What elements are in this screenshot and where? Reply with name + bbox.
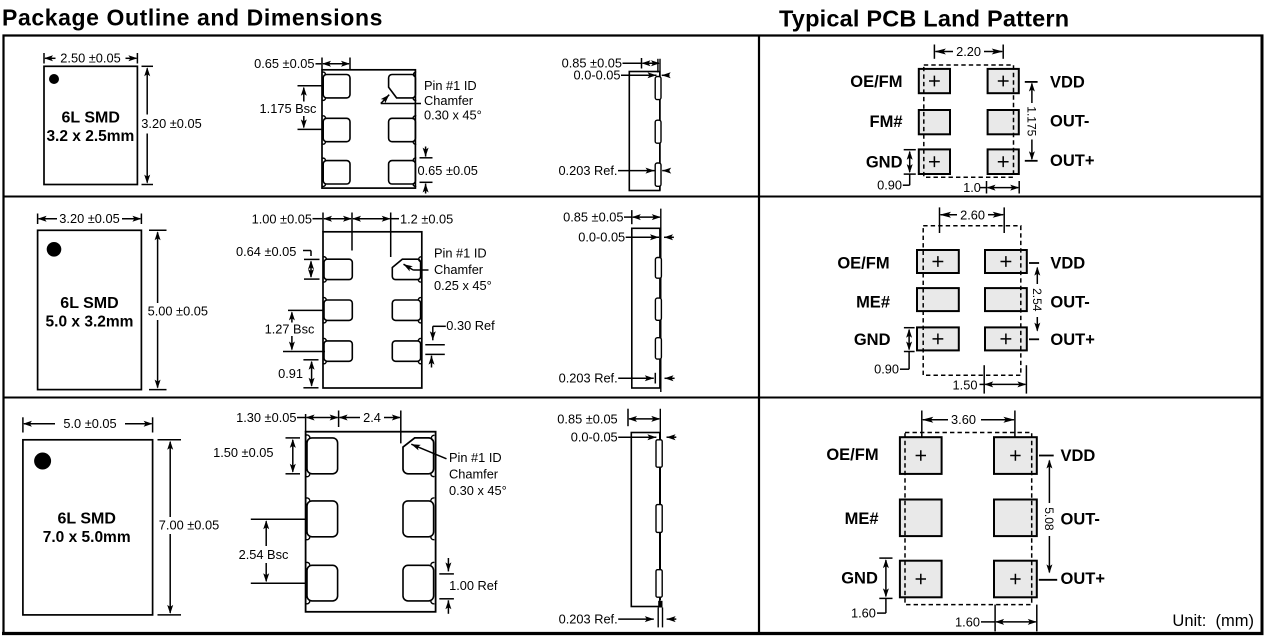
- svg-text:ME#: ME#: [845, 510, 879, 528]
- svg-text:3.2 x 2.5mm: 3.2 x 2.5mm: [46, 128, 134, 145]
- svg-text:5.0 ±0.05: 5.0 ±0.05: [63, 416, 116, 431]
- svg-text:VDD: VDD: [1050, 73, 1085, 91]
- svg-text:0.85 ±0.05: 0.85 ±0.05: [563, 210, 623, 225]
- svg-text:VDD: VDD: [1061, 447, 1096, 465]
- svg-text:Pin #1 ID: Pin #1 ID: [434, 246, 487, 261]
- svg-text:VDD: VDD: [1050, 255, 1085, 273]
- svg-text:Pin #1 ID: Pin #1 ID: [449, 450, 502, 465]
- svg-text:OUT+: OUT+: [1050, 331, 1094, 349]
- svg-text:0.30 x 45°: 0.30 x 45°: [424, 108, 482, 123]
- svg-text:1.60: 1.60: [851, 606, 876, 621]
- svg-text:2.50 ±0.05: 2.50 ±0.05: [60, 51, 120, 66]
- svg-text:2.60: 2.60: [960, 207, 985, 222]
- svg-text:3.20 ±0.05: 3.20 ±0.05: [59, 211, 119, 226]
- svg-text:0.65 ±0.05: 0.65 ±0.05: [418, 163, 478, 178]
- svg-text:0.203 Ref.: 0.203 Ref.: [558, 163, 617, 178]
- svg-text:6L SMD: 6L SMD: [60, 295, 118, 312]
- svg-text:3.20 ±0.05: 3.20 ±0.05: [141, 116, 201, 131]
- svg-text:7.0 x 5.0mm: 7.0 x 5.0mm: [43, 529, 131, 546]
- svg-text:0.85 ±0.05: 0.85 ±0.05: [557, 411, 617, 426]
- svg-text:2.20: 2.20: [956, 44, 981, 59]
- svg-text:2.54: 2.54: [1030, 288, 1044, 312]
- svg-text:ME#: ME#: [856, 294, 890, 312]
- svg-text:0.30 x 45°: 0.30 x 45°: [449, 483, 507, 498]
- svg-text:Chamfer: Chamfer: [449, 466, 499, 481]
- svg-text:1.50: 1.50: [953, 377, 978, 392]
- svg-text:OE/FM: OE/FM: [850, 73, 902, 91]
- svg-text:1.175 Bsc: 1.175 Bsc: [260, 101, 318, 116]
- svg-text:OUT-: OUT-: [1050, 294, 1089, 312]
- svg-text:FM#: FM#: [870, 113, 903, 131]
- svg-text:1.00 ±0.05: 1.00 ±0.05: [252, 211, 312, 226]
- svg-text:0.0-0.05: 0.0-0.05: [578, 230, 625, 245]
- svg-text:OUT-: OUT-: [1061, 510, 1100, 528]
- svg-text:5.0 x 3.2mm: 5.0 x 3.2mm: [46, 314, 134, 331]
- svg-text:3.60: 3.60: [951, 412, 976, 427]
- svg-text:0.90: 0.90: [874, 362, 899, 377]
- svg-text:Typical PCB Land Pattern: Typical PCB Land Pattern: [779, 6, 1069, 32]
- svg-text:1.00 Ref: 1.00 Ref: [449, 578, 498, 593]
- svg-text:1.30 ±0.05: 1.30 ±0.05: [236, 410, 296, 425]
- svg-text:OUT+: OUT+: [1061, 570, 1105, 588]
- svg-text:7.00 ±0.05: 7.00 ±0.05: [159, 518, 219, 533]
- svg-text:1.0: 1.0: [963, 180, 981, 195]
- svg-text:OUT-: OUT-: [1050, 112, 1089, 130]
- svg-text:1.2 ±0.05: 1.2 ±0.05: [400, 211, 453, 226]
- svg-text:0.203 Ref.: 0.203 Ref.: [559, 612, 618, 627]
- svg-text:Chamfer: Chamfer: [434, 262, 484, 277]
- svg-text:1.50 ±0.05: 1.50 ±0.05: [213, 445, 273, 460]
- svg-text:Unit: (mm): Unit: (mm): [1172, 612, 1254, 630]
- svg-text:GND: GND: [841, 570, 878, 588]
- svg-text:GND: GND: [854, 331, 891, 349]
- svg-text:5.08: 5.08: [1042, 507, 1056, 531]
- svg-text:Package Outline and Dimensions: Package Outline and Dimensions: [2, 5, 383, 31]
- svg-text:6L SMD: 6L SMD: [62, 109, 120, 126]
- svg-text:0.91: 0.91: [278, 366, 303, 381]
- svg-text:0.25 x 45°: 0.25 x 45°: [434, 278, 492, 293]
- svg-text:5.00 ±0.05: 5.00 ±0.05: [148, 304, 208, 319]
- svg-text:0.30 Ref: 0.30 Ref: [446, 318, 495, 333]
- svg-text:2.54 Bsc: 2.54 Bsc: [239, 547, 289, 562]
- svg-text:0.90: 0.90: [877, 178, 902, 193]
- svg-text:6L SMD: 6L SMD: [58, 510, 116, 527]
- svg-text:OE/FM: OE/FM: [837, 254, 889, 272]
- svg-text:0.65 ±0.05: 0.65 ±0.05: [254, 56, 314, 71]
- svg-text:0.0-0.05: 0.0-0.05: [571, 430, 618, 445]
- svg-text:1.60: 1.60: [955, 614, 980, 629]
- svg-text:0.64 ±0.05: 0.64 ±0.05: [236, 244, 296, 259]
- svg-text:0.203 Ref.: 0.203 Ref.: [559, 371, 618, 386]
- svg-text:OE/FM: OE/FM: [826, 446, 878, 464]
- svg-text:GND: GND: [866, 153, 903, 171]
- svg-text:1.175: 1.175: [1025, 106, 1039, 136]
- svg-text:1.27 Bsc: 1.27 Bsc: [265, 322, 315, 337]
- svg-text:Pin #1 ID: Pin #1 ID: [424, 78, 477, 93]
- svg-text:OUT+: OUT+: [1050, 152, 1094, 170]
- svg-text:Chamfer: Chamfer: [424, 93, 474, 108]
- svg-text:2.4: 2.4: [363, 410, 381, 425]
- svg-text:0.0-0.05: 0.0-0.05: [574, 68, 621, 83]
